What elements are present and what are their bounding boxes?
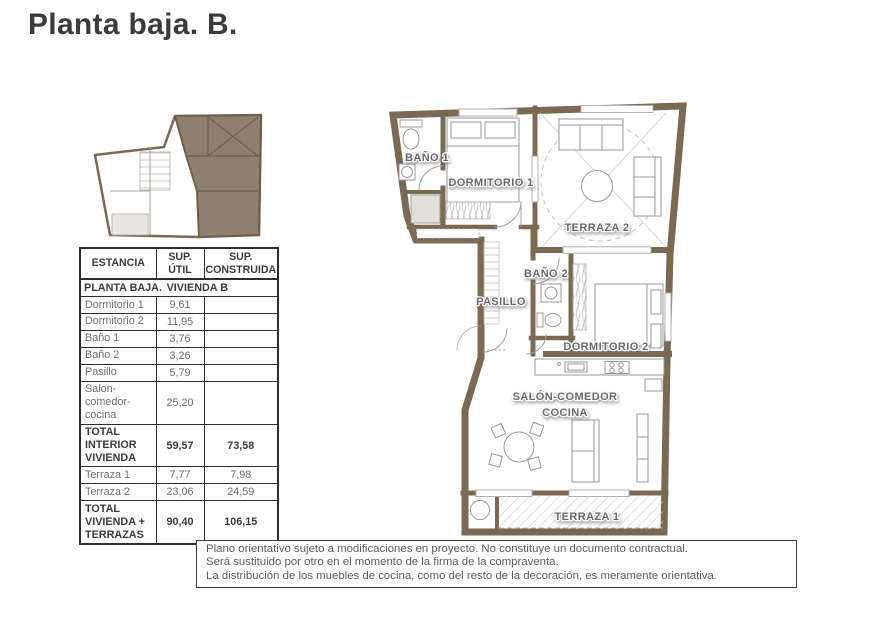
const-cell — [204, 330, 278, 347]
disclaimer-line: Será sustituido por otro en el momento d… — [206, 556, 787, 569]
table-row: Baño 2 3,26 — [80, 347, 278, 364]
room-name-cell: TOTAL INTERIOR VIVIENDA — [80, 424, 156, 467]
table-total-row: TOTAL VIVIENDA + TERRAZAS 90,40 106,15 — [80, 501, 278, 544]
room-name-cell: Terraza 2 — [80, 484, 156, 501]
room-name-cell: Pasillo — [80, 364, 156, 381]
util-cell: 3,76 — [156, 330, 204, 347]
const-cell — [204, 364, 278, 381]
terraza1-table — [471, 501, 490, 520]
const-cell — [204, 347, 278, 364]
room-name-cell: Dormitorio 2 — [80, 313, 156, 330]
table-row: Dormitorio 2 11,95 — [80, 313, 278, 330]
table-row: Terraza 2 23,06 24,59 — [80, 484, 278, 501]
room-label-salon-line1: SALÓN-COMEDOR — [513, 390, 618, 403]
table-header-row: ESTANCIA SUP. ÚTIL SUP. CONSTRUIDA — [80, 248, 278, 279]
const-cell: 73,58 — [204, 424, 278, 467]
section-unit-label: VIVIENDA B — [167, 282, 228, 294]
room-label-salon-line2: COCINA — [542, 407, 588, 419]
col-header-estancia: ESTANCIA — [80, 248, 156, 279]
util-cell: 25,20 — [156, 381, 204, 424]
room-name-cell: Baño 2 — [80, 347, 156, 364]
floor-plan: BAÑO 1 DORMITORIO 1 TERRAZA 2 BAÑO 2 PAS… — [383, 98, 695, 542]
room-label-terraza-1: TERRAZA 1 — [555, 511, 620, 523]
const-cell — [204, 381, 278, 424]
util-cell: 11,95 — [156, 313, 204, 330]
room-name-cell: Terraza 1 — [80, 467, 156, 484]
room-name-cell: Salon-comedor-cocina — [80, 381, 156, 424]
disclaimer-line: La distribución de los muebles de cocina… — [206, 570, 787, 583]
room-label-bano-1: BAÑO 1 — [405, 151, 449, 164]
room-label-terraza-2: TERRAZA 2 — [565, 222, 630, 234]
const-cell — [204, 297, 278, 314]
table-row: Baño 1 3,76 — [80, 330, 278, 347]
util-cell: 59,57 — [156, 424, 204, 467]
surface-area-table: ESTANCIA SUP. ÚTIL SUP. CONSTRUIDA PLANT… — [79, 247, 279, 545]
room-label-bano-2: BAÑO 2 — [524, 267, 568, 280]
col-header-sup-util: SUP. ÚTIL — [156, 248, 204, 279]
disclaimer-line: Plano orientativo sujeto a modificacione… — [206, 543, 787, 556]
util-cell: 9,61 — [156, 297, 204, 314]
util-cell: 5,79 — [156, 364, 204, 381]
room-label-dormitorio-2: DORMITORIO 2 — [563, 341, 648, 353]
hallway-closet — [484, 242, 499, 324]
const-cell: 7,98 — [204, 467, 278, 484]
table-row: Terraza 1 7,77 7,98 — [80, 467, 278, 484]
page: Planta baja. B. ESTANCI — [0, 0, 880, 640]
const-cell: 106,15 — [204, 501, 278, 544]
util-cell: 23,06 — [156, 484, 204, 501]
table-total-row: TOTAL INTERIOR VIVIENDA 59,57 73,58 — [80, 424, 278, 467]
room-name-cell: Baño 1 — [80, 330, 156, 347]
table-row: Salon-comedor-cocina 25,20 — [80, 381, 278, 424]
section-floor-label: PLANTA BAJA. — [84, 282, 162, 294]
disclaimer-note: Plano orientativo sujeto a modificacione… — [196, 540, 797, 588]
util-cell: 90,40 — [156, 501, 204, 544]
room-label-dormitorio-1: DORMITORIO 1 — [448, 177, 533, 189]
table-section-row: PLANTA BAJA. VIVIENDA B — [80, 279, 278, 297]
const-cell — [204, 313, 278, 330]
const-cell: 24,59 — [204, 484, 278, 501]
shower-tray — [411, 195, 440, 223]
col-header-sup-const: SUP. CONSTRUIDA — [204, 248, 278, 279]
key-plan-thumbnail — [88, 94, 284, 244]
util-cell: 7,77 — [156, 467, 204, 484]
room-label-pasillo: PASILLO — [476, 296, 526, 308]
room-name-cell: TOTAL VIVIENDA + TERRAZAS — [80, 501, 156, 544]
table-row: Pasillo 5,79 — [80, 364, 278, 381]
table-row: Dormitorio 1 9,61 — [80, 297, 278, 314]
util-cell: 3,26 — [156, 347, 204, 364]
room-name-cell: Dormitorio 1 — [80, 297, 156, 314]
page-title: Planta baja. B. — [28, 8, 238, 42]
